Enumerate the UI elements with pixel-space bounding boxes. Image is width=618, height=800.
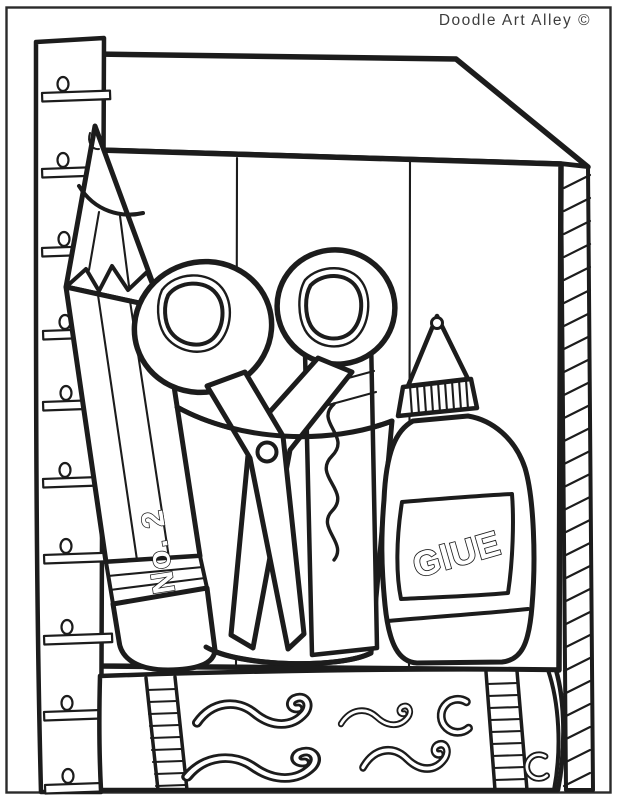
pencil-eraser: [113, 588, 215, 670]
artwork-canvas: Doodle Art Alley ©: [0, 0, 618, 800]
scissors-handle-hole: [158, 275, 230, 351]
pencil-case: [99, 669, 563, 790]
scissors-pivot-screw: [258, 443, 277, 462]
glue-nozzle-tip: [432, 318, 443, 329]
box-side-face: [561, 164, 593, 790]
artist-credit: Doodle Art Alley ©: [439, 12, 591, 29]
coloring-page: Doodle Art Alley ©: [0, 0, 618, 800]
scissors-handle-hole: [299, 268, 368, 346]
